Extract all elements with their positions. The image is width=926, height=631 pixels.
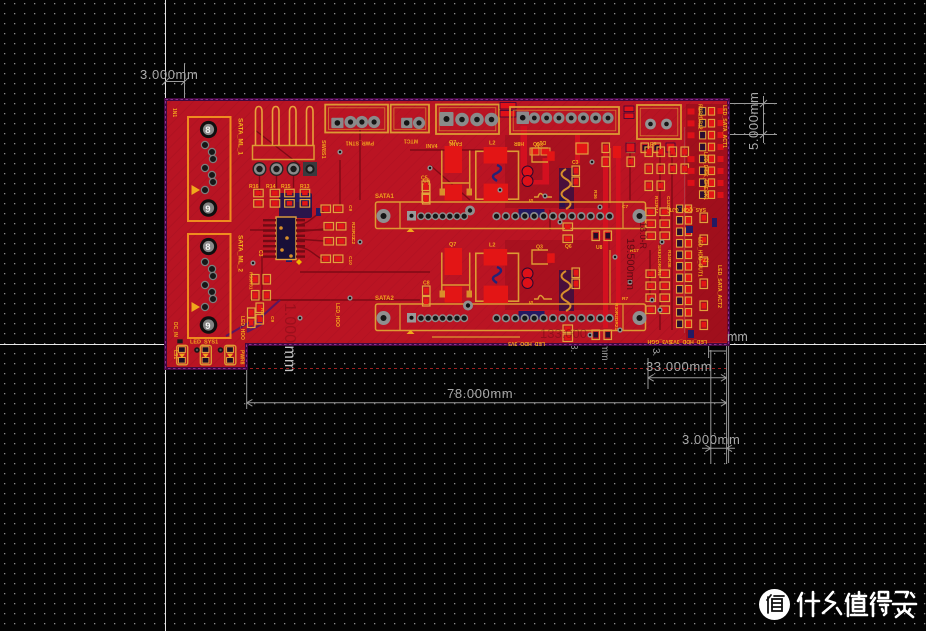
svg-text:C2: C2 bbox=[350, 238, 356, 244]
svg-text:mm: mm bbox=[281, 346, 298, 373]
svg-text:C8: C8 bbox=[423, 281, 430, 287]
svg-text:mm: mm bbox=[599, 344, 610, 361]
svg-text:Q3: Q3 bbox=[536, 245, 543, 251]
svg-text:R33R31: R33R31 bbox=[248, 272, 254, 290]
svg-text:mm: mm bbox=[727, 330, 748, 344]
svg-text:R7: R7 bbox=[622, 296, 628, 302]
svg-text:78.000mm: 78.000mm bbox=[447, 386, 513, 401]
svg-text:3.000mm: 3.000mm bbox=[140, 67, 198, 82]
svg-text:LED_HDD_3V3: LED_HDD_3V3 bbox=[670, 338, 707, 344]
svg-text:LS1: LS1 bbox=[172, 350, 178, 359]
svg-text:1.000: 1.000 bbox=[281, 303, 298, 343]
svg-text:U8: U8 bbox=[596, 245, 603, 251]
svg-text:C7: C7 bbox=[622, 204, 628, 210]
svg-text:3.000mm: 3.000mm bbox=[682, 432, 740, 447]
svg-text:1N1: 1N1 bbox=[171, 108, 177, 117]
svg-text:LED_HDO: LED_HDO bbox=[239, 316, 245, 340]
svg-text:R30R2DR21: R30R2DR21 bbox=[613, 303, 619, 331]
svg-text:SRER10R8R1: SRER10R8R1 bbox=[656, 245, 662, 276]
svg-text:SATA_ML_2: SATA_ML_2 bbox=[237, 235, 244, 272]
svg-text:SV3_GGH: SV3_GGH bbox=[647, 338, 672, 344]
svg-text:19.500mm: 19.500mm bbox=[624, 238, 636, 290]
svg-text:R2R2DR12: R2R2DR12 bbox=[697, 104, 703, 130]
svg-text:C9: C9 bbox=[269, 316, 275, 322]
svg-text:LED_SATA_ACT1: LED_SATA_ACT1 bbox=[721, 105, 727, 148]
svg-text:Q6: Q6 bbox=[565, 244, 572, 250]
svg-text:LED_SATA_ACT2: LED_SATA_ACT2 bbox=[716, 265, 722, 308]
svg-text:C5: C5 bbox=[421, 176, 428, 182]
svg-text:133.000: 133.000 bbox=[540, 326, 587, 341]
svg-text:SAS_QGH_GJT: SAS_QGH_GJT bbox=[669, 206, 706, 212]
svg-text:LED_HDD_OUT1: LED_HDD_OUT1 bbox=[697, 237, 703, 277]
svg-text:SATA2: SATA2 bbox=[375, 296, 394, 302]
svg-text:L2: L2 bbox=[489, 243, 495, 249]
svg-text:INV4: INV4 bbox=[426, 144, 438, 150]
svg-text:SATA1: SATA1 bbox=[375, 194, 394, 200]
svg-text:H8R: H8R bbox=[514, 140, 524, 146]
svg-text:PWR8: PWR8 bbox=[239, 350, 245, 365]
svg-text:LED_DISK_CHECK1: LED_DISK_CHECK1 bbox=[702, 152, 708, 200]
svg-text:SATA_ML_1: SATA_ML_1 bbox=[237, 118, 244, 155]
svg-text:R8: R8 bbox=[259, 308, 265, 314]
svg-text:PWR_STN1: PWR_STN1 bbox=[346, 140, 374, 146]
svg-text:SW8S1: SW8S1 bbox=[320, 140, 326, 159]
svg-text:3.: 3. bbox=[650, 348, 661, 356]
svg-text:R34R36: R34R36 bbox=[666, 250, 672, 268]
svg-text:18.0-R: 18.0-R bbox=[638, 222, 648, 250]
svg-text:C10: C10 bbox=[347, 256, 353, 265]
svg-text:Q7: Q7 bbox=[449, 242, 456, 248]
svg-text:LED_HDO: LED_HDO bbox=[334, 303, 340, 327]
svg-text:5: 5 bbox=[527, 301, 533, 304]
svg-text:C9: C9 bbox=[347, 205, 353, 211]
svg-text:C3: C3 bbox=[572, 160, 579, 166]
svg-text:Z2: Z2 bbox=[703, 258, 709, 264]
svg-text:33.000mm: 33.000mm bbox=[646, 359, 712, 374]
svg-text:R36: R36 bbox=[592, 190, 598, 199]
svg-text:DC_IN: DC_IN bbox=[172, 322, 178, 337]
svg-text:C3: C3 bbox=[257, 250, 263, 257]
svg-text:MTC1: MTC1 bbox=[404, 138, 418, 144]
svg-text:5.000mm: 5.000mm bbox=[746, 92, 761, 150]
